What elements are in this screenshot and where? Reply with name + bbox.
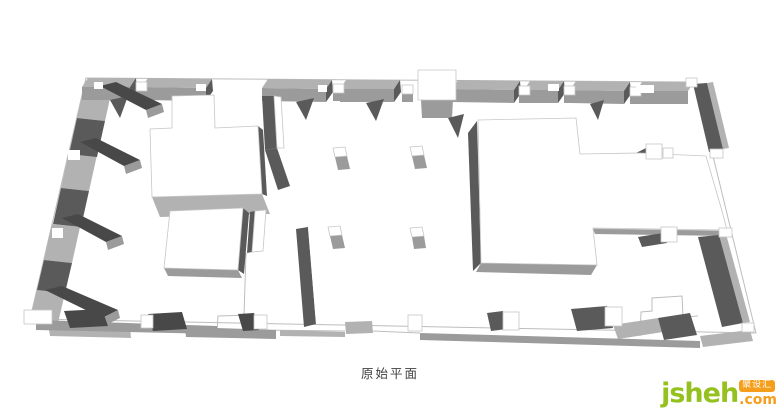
jsheh-brand-text: jsheh (661, 380, 738, 407)
floor-plan-3d-illustration (0, 0, 780, 408)
white-volumes (24, 70, 754, 332)
plan-caption: 原始平面 (290, 363, 490, 382)
jsheh-watermark: jsheh 聚设汇 .com (661, 380, 777, 407)
jsheh-domain-suffix: .com (739, 393, 777, 407)
page: 原始平面 jsheh 聚设汇 .com (0, 0, 780, 408)
jsheh-logo-right: 聚设汇 .com (739, 380, 777, 407)
jsheh-badge: 聚设汇 (739, 380, 775, 392)
